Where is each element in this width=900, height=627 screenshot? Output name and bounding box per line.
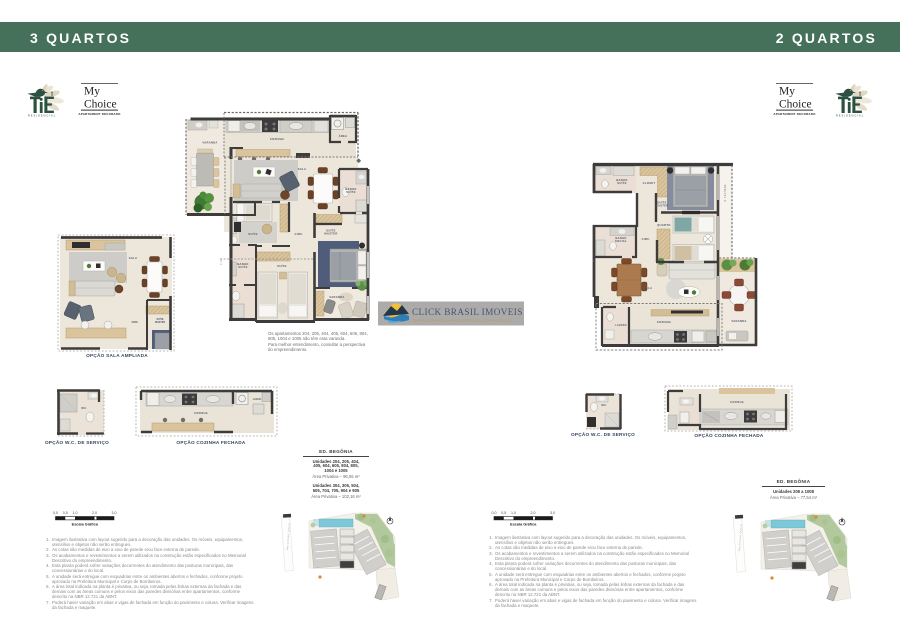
svg-text:4,70: 4,70	[221, 259, 223, 265]
svg-text:SALA: SALA	[644, 286, 653, 290]
svg-text:2,0: 2,0	[531, 511, 536, 515]
svg-text:W.C.: W.C.	[81, 407, 87, 410]
svg-text:QUARTO: QUARTO	[657, 223, 670, 227]
svg-text:COZINHA: COZINHA	[657, 320, 671, 324]
svg-text:RESIDENCIAL: RESIDENCIAL	[28, 114, 56, 118]
svg-text:APARTAMENT DECORADO: APARTAMENT DECORADO	[78, 112, 121, 116]
svg-text:0,5: 0,5	[63, 511, 68, 515]
svg-text:3,0: 3,0	[112, 511, 117, 515]
svg-text:VARANDA: VARANDA	[202, 141, 217, 145]
svg-text:Escala Gráfica: Escala Gráfica	[72, 523, 99, 527]
svg-text:Á. TECHADA: Á. TECHADA	[724, 184, 727, 201]
svg-text:CIRC.: CIRC.	[295, 232, 304, 236]
svg-text:VARANDA: VARANDA	[329, 295, 344, 299]
svg-text:CLOSET: CLOSET	[643, 181, 656, 185]
svg-text:COZINHA: COZINHA	[194, 411, 208, 415]
svg-text:2,0: 2,0	[92, 511, 97, 515]
svg-text:CIRC.: CIRC.	[642, 237, 651, 241]
svg-text:Choice: Choice	[84, 99, 117, 111]
svg-text:VARANDA: VARANDA	[731, 319, 746, 323]
svg-text:CIRC.: CIRC.	[131, 320, 138, 324]
svg-text:0,5: 0,5	[501, 511, 506, 515]
svg-text:COZINHA: COZINHA	[730, 400, 744, 404]
svg-text:MASTER: MASTER	[324, 232, 337, 236]
svg-text:SOCIAL: SOCIAL	[615, 239, 627, 243]
svg-text:LAVAN.: LAVAN.	[253, 398, 262, 401]
svg-text:RESIDENCIAL: RESIDENCIAL	[836, 114, 864, 118]
svg-text:W.C.: W.C.	[601, 404, 607, 407]
svg-text:MASTER: MASTER	[655, 204, 668, 208]
svg-text:SUA MELHOR IMOBILIARIA DE NITE: SUA MELHOR IMOBILIARIA DE NITEROI RJ LTD…	[413, 319, 512, 323]
svg-text:My: My	[779, 86, 795, 98]
svg-text:Choice: Choice	[779, 99, 812, 111]
svg-text:LAVABO: LAVABO	[615, 324, 627, 327]
svg-text:0,0: 0,0	[492, 511, 497, 515]
svg-text:CLICK BRASIL IMOVEIS: CLICK BRASIL IMOVEIS	[412, 307, 523, 317]
svg-text:3,0: 3,0	[550, 511, 555, 515]
svg-text:APARTAMENT DECORADO: APARTAMENT DECORADO	[773, 112, 816, 116]
svg-text:Escala Gráfica: Escala Gráfica	[510, 523, 537, 527]
svg-text:0,0: 0,0	[53, 511, 58, 515]
svg-text:COZINHA: COZINHA	[270, 137, 284, 141]
svg-text:1,0: 1,0	[73, 511, 78, 515]
svg-text:SALA: SALA	[129, 256, 138, 260]
svg-text:SALA: SALA	[298, 167, 307, 171]
svg-text:My: My	[84, 86, 100, 98]
svg-text:MASTER: MASTER	[155, 321, 165, 324]
svg-text:1,0: 1,0	[511, 511, 516, 515]
